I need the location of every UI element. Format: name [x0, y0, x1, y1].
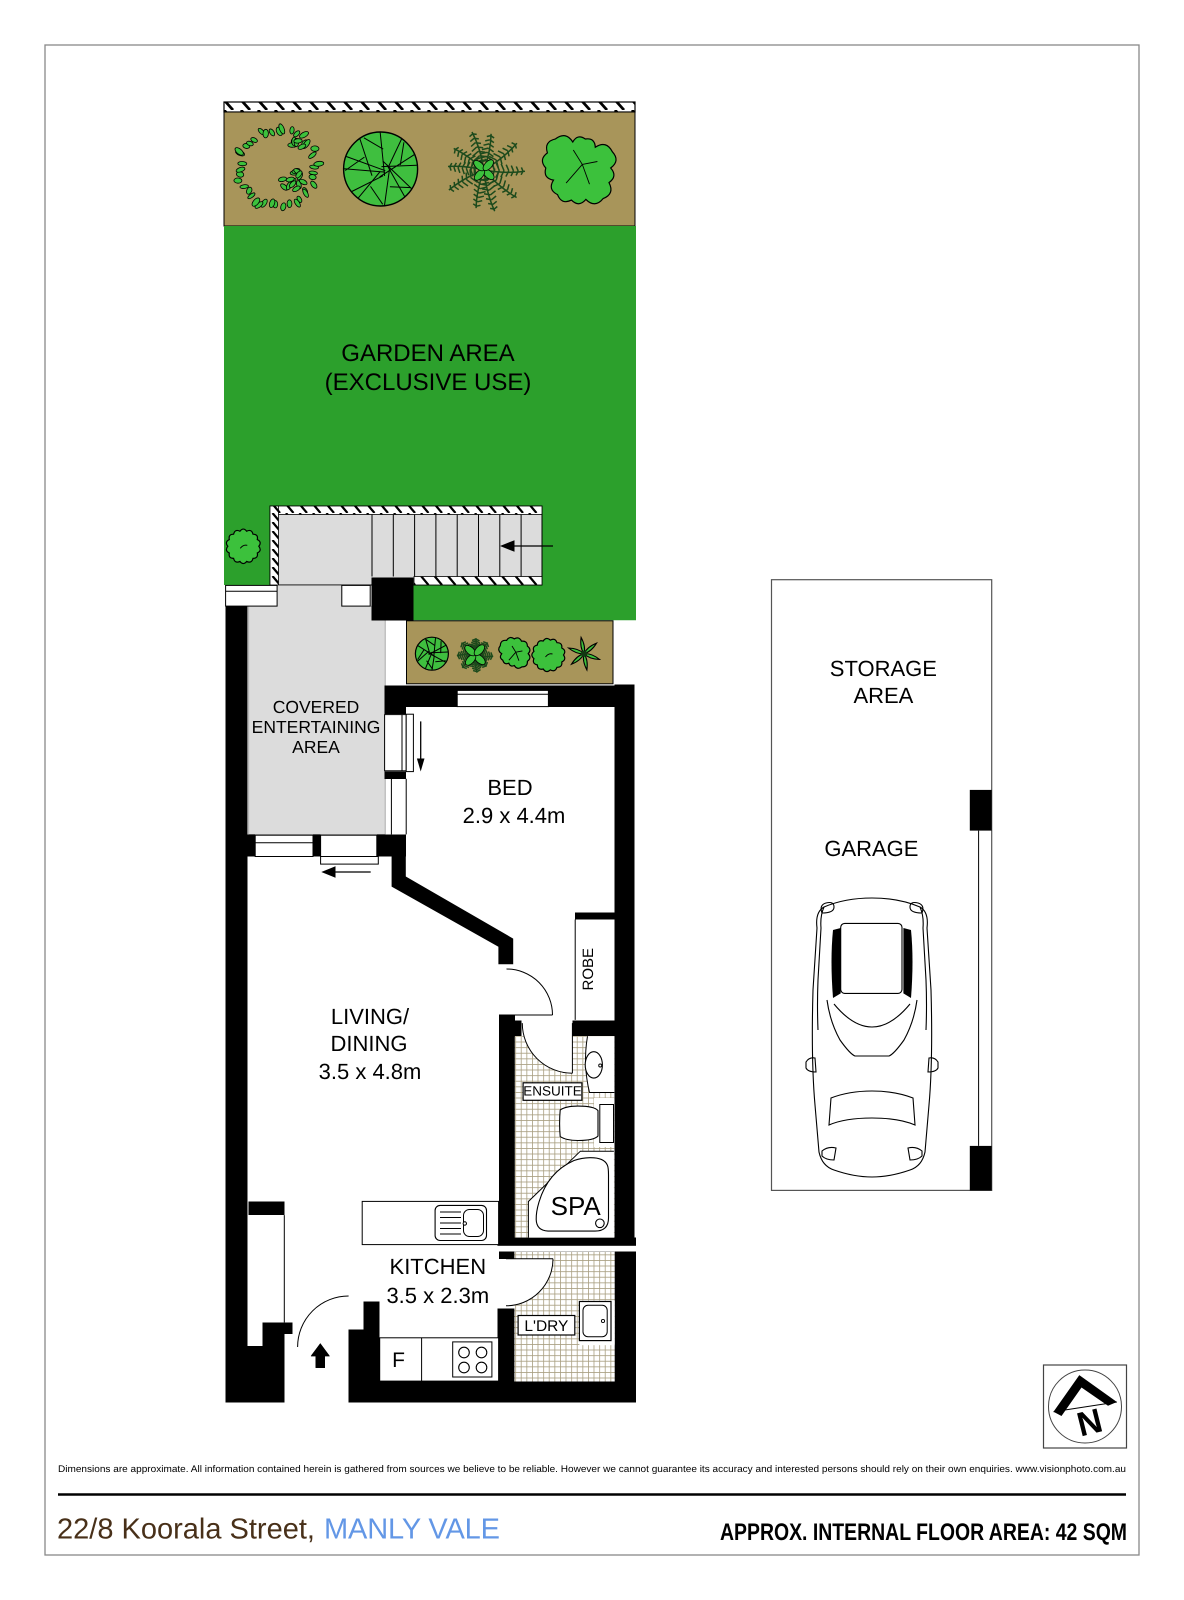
svg-text:ENSUITE: ENSUITE — [523, 1084, 582, 1099]
svg-text:MANLY VALE: MANLY VALE — [324, 1514, 500, 1546]
svg-text:STORAGE: STORAGE — [830, 656, 937, 681]
svg-text:BED: BED — [487, 775, 532, 800]
svg-text:LIVING/: LIVING/ — [331, 1004, 410, 1029]
svg-text:3.5 x 4.8m: 3.5 x 4.8m — [319, 1059, 422, 1084]
svg-text:3.5 x 2.3m: 3.5 x 2.3m — [386, 1283, 489, 1308]
svg-text:COVERED: COVERED — [273, 697, 360, 717]
svg-text:GARAGE: GARAGE — [824, 836, 918, 861]
svg-text:ENTERTAINING: ENTERTAINING — [252, 717, 381, 737]
svg-text:(EXCLUSIVE USE): (EXCLUSIVE USE) — [325, 369, 532, 396]
svg-text:F: F — [392, 1349, 405, 1372]
svg-text:L'DRY: L'DRY — [524, 1318, 568, 1335]
svg-text:AREA: AREA — [292, 737, 340, 757]
svg-text:ROBE: ROBE — [580, 948, 597, 991]
svg-text:GARDEN AREA: GARDEN AREA — [341, 340, 514, 367]
svg-text:DINING: DINING — [331, 1031, 408, 1056]
svg-text:SPA: SPA — [551, 1191, 602, 1221]
svg-text:2.9 x 4.4m: 2.9 x 4.4m — [463, 803, 566, 828]
svg-text:AREA: AREA — [853, 683, 913, 708]
svg-text:Dimensions are approximate. Al: Dimensions are approximate. All informat… — [58, 1464, 1126, 1475]
svg-text:22/8 Koorala Street,: 22/8 Koorala Street, — [57, 1514, 315, 1546]
svg-text:APPROX. INTERNAL FLOOR AREA: 4: APPROX. INTERNAL FLOOR AREA: 42 SQM — [720, 1519, 1127, 1546]
svg-text:KITCHEN: KITCHEN — [390, 1254, 487, 1279]
